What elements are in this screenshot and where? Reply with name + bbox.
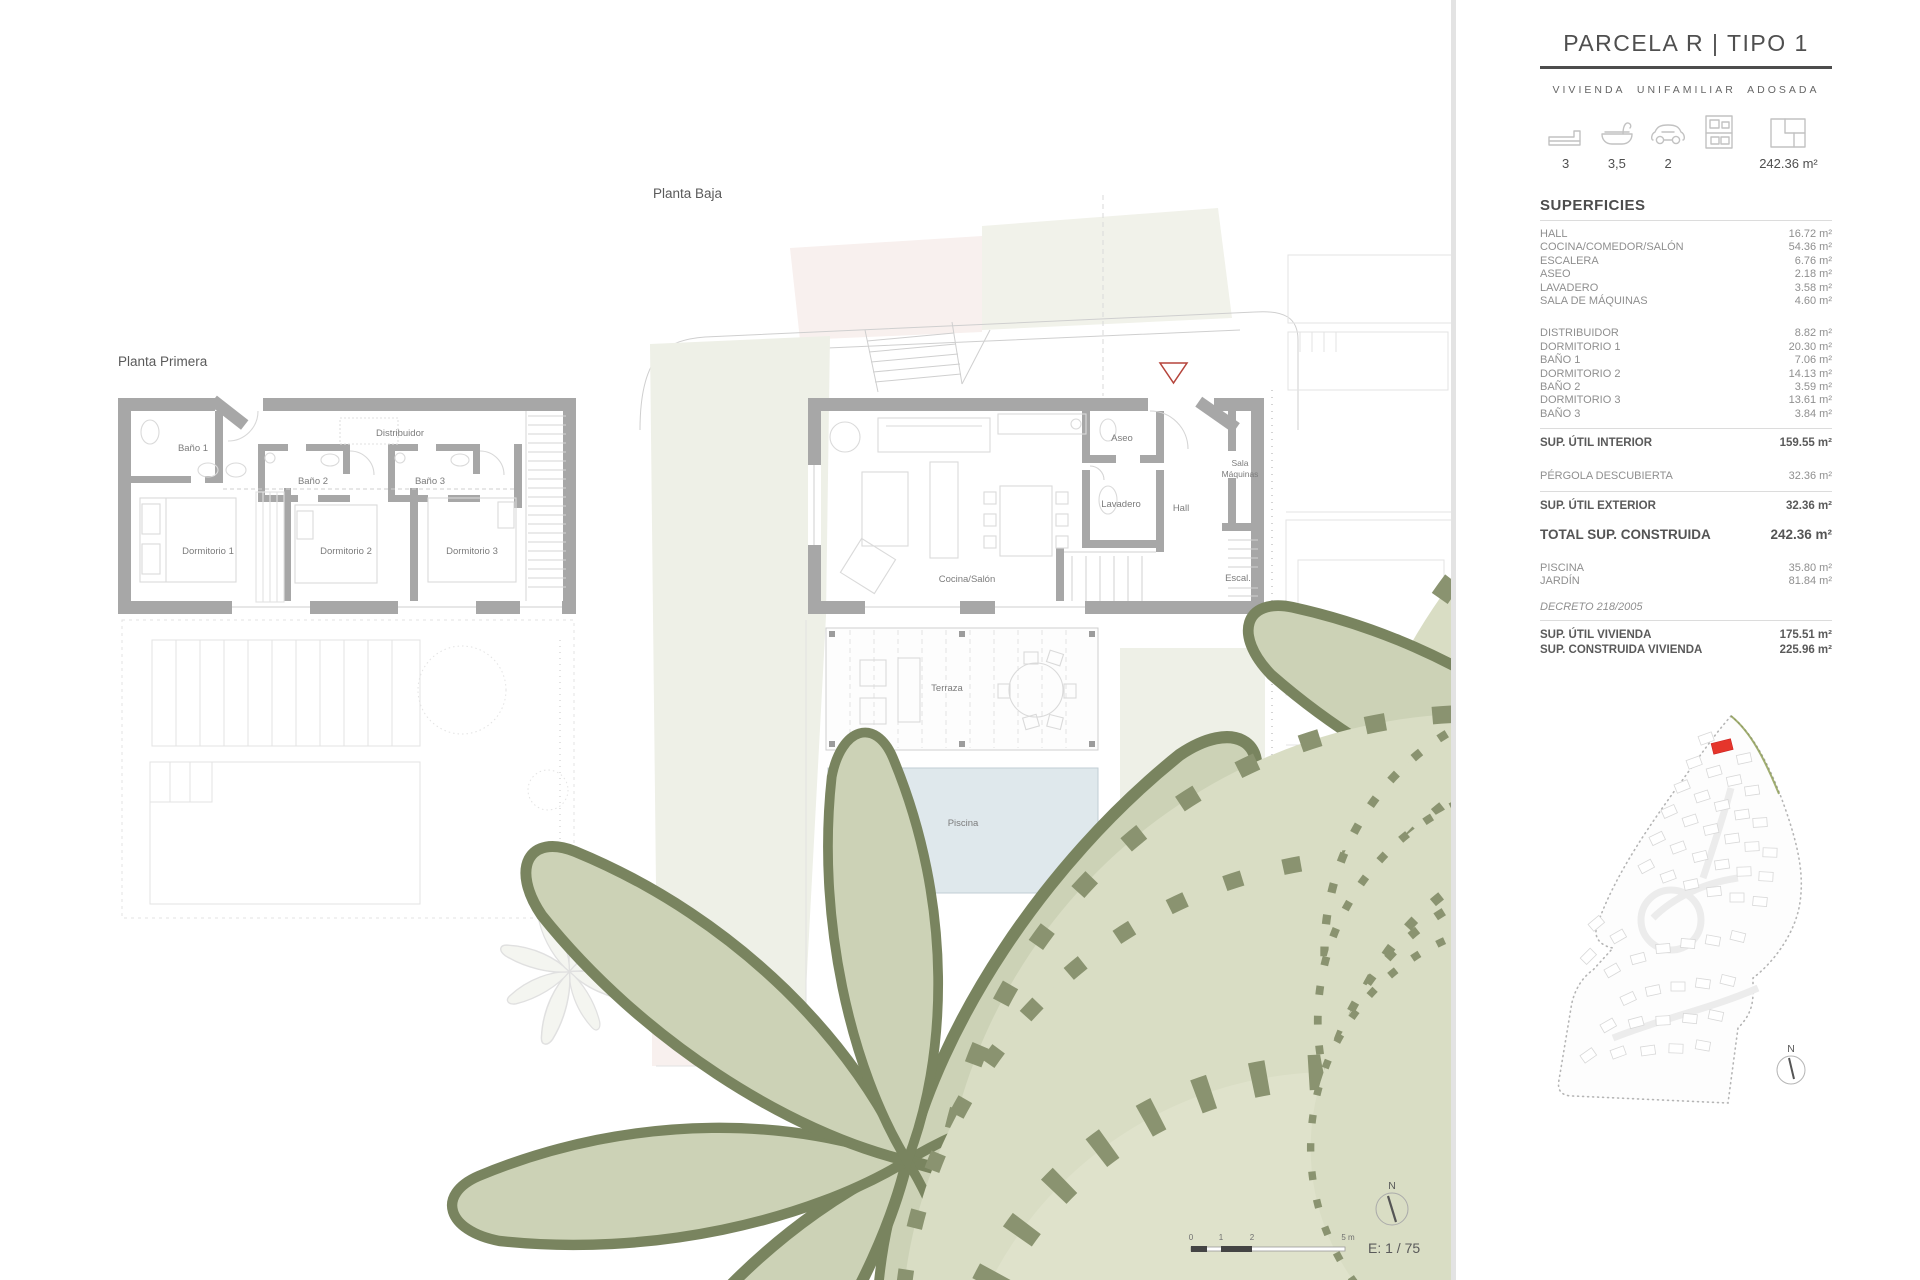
- superficies-exterior-rows: PÉRGOLA DESCUBIERTA 32.36 m²: [1540, 470, 1832, 483]
- floorplan-icon: [1768, 116, 1808, 150]
- row-value: 2.18 m²: [1795, 268, 1832, 281]
- feature-bedrooms: 3: [1540, 118, 1591, 171]
- superficies-row: PISCINA 35.80 m²: [1540, 562, 1832, 575]
- row-value: 16.72 m²: [1789, 228, 1832, 241]
- row-value: 3.84 m²: [1795, 408, 1832, 421]
- car-icon: [1648, 116, 1688, 150]
- decree-note: DECRETO 218/2005: [1540, 601, 1832, 613]
- room-label-bano3: Baño 3: [415, 476, 445, 487]
- scale-tick-5m: 5 m: [1341, 1233, 1355, 1242]
- room-label-sala-maquinas: Sala: [1231, 458, 1248, 468]
- total-constructed-row: TOTAL SUP. CONSTRUIDA 242.36 m²: [1540, 526, 1832, 543]
- row-label: PÉRGOLA DESCUBIERTA: [1540, 470, 1673, 483]
- row-value: 3.58 m²: [1795, 282, 1832, 295]
- map-north-label: N: [1787, 1043, 1795, 1055]
- separator: [1540, 428, 1832, 429]
- decree-rows: SUP. ÚTIL VIVIENDA 175.51 m² SUP. CONSTR…: [1540, 628, 1832, 658]
- site-location-map: N: [1553, 708, 1818, 1113]
- title-rule: [1540, 66, 1832, 69]
- superficies-row: BAÑO 3 3.84 m²: [1540, 408, 1832, 421]
- feature-value: 242.36 m²: [1745, 156, 1832, 171]
- row-label: SUP. ÚTIL EXTERIOR: [1540, 499, 1656, 514]
- row-label: BAÑO 1: [1540, 354, 1580, 367]
- superficies-row: DORMITORIO 3 13.61 m²: [1540, 394, 1832, 407]
- row-label: TOTAL SUP. CONSTRUIDA: [1540, 526, 1711, 543]
- room-label-hall: Hall: [1173, 503, 1189, 514]
- ground-floor-walls: [808, 398, 1264, 614]
- feature-value: 3,5: [1591, 156, 1642, 171]
- superficies-row: BAÑO 2 3.59 m²: [1540, 381, 1832, 394]
- row-label: DISTRIBUIDOR: [1540, 327, 1619, 340]
- bathtub-icon: [1597, 116, 1637, 150]
- superficies-row: PÉRGOLA DESCUBIERTA 32.36 m²: [1540, 470, 1832, 483]
- row-label: SUP. ÚTIL INTERIOR: [1540, 436, 1652, 451]
- row-value: 8.82 m²: [1795, 327, 1832, 340]
- row-label: JARDÍN: [1540, 575, 1580, 588]
- scale-label: E: 1 / 75: [1368, 1240, 1420, 1256]
- room-label-sala-maquinas-2: Máquinas: [1222, 469, 1259, 479]
- row-value: 32.36 m²: [1789, 470, 1832, 483]
- room-label-distribuidor: Distribuidor: [376, 428, 424, 439]
- room-label-cocina-salon: Cocina/Salón: [939, 574, 996, 585]
- feature-row: 3 3,5 2: [1540, 114, 1832, 171]
- scale-tick-0: 0: [1189, 1233, 1194, 1242]
- feature-value: 2: [1642, 156, 1693, 171]
- floorplan-sheet: Planta Primera: [0, 0, 1920, 1280]
- separator: [1540, 620, 1832, 621]
- room-label-bano1: Baño 1: [178, 443, 208, 454]
- superficies-row: LAVADERO 3.58 m²: [1540, 282, 1832, 295]
- first-floor-ghost-garden: [122, 620, 574, 930]
- superficies-outdoor-rows: PISCINA 35.80 m² JARDÍN 81.84 m²: [1540, 562, 1832, 589]
- row-label: LAVADERO: [1540, 282, 1598, 295]
- scale-tick-1: 1: [1219, 1233, 1224, 1242]
- plan-drawing: Planta Primera: [0, 0, 1451, 1280]
- row-label: PISCINA: [1540, 562, 1584, 575]
- superficies-ground-rows: HALL 16.72 m² COCINA/COMEDOR/SALÓN 54.36…: [1540, 228, 1832, 308]
- superficies-row: BAÑO 1 7.06 m²: [1540, 354, 1832, 367]
- row-value: 4.60 m²: [1795, 295, 1832, 308]
- first-floor-furniture: [140, 411, 516, 602]
- superficies-first-rows: DISTRIBUIDOR 8.82 m² DORMITORIO 1 20.30 …: [1540, 327, 1832, 421]
- first-floor-stairs: [526, 411, 566, 601]
- bed-icon: [1547, 118, 1585, 150]
- superficies-row: ASEO 2.18 m²: [1540, 268, 1832, 281]
- north-label: N: [1388, 1180, 1396, 1192]
- row-value: 3.59 m²: [1795, 381, 1832, 394]
- feature-value: 3: [1540, 156, 1591, 171]
- room-label-bano2: Baño 2: [298, 476, 328, 487]
- scale-tick-2: 2: [1250, 1233, 1255, 1242]
- row-value: 81.84 m²: [1789, 575, 1832, 588]
- row-value: 35.80 m²: [1789, 562, 1832, 575]
- room-label-dormitorio2: Dormitorio 2: [320, 546, 372, 557]
- superficies-row: HALL 16.72 m²: [1540, 228, 1832, 241]
- parcel-title: PARCELA R | TIPO 1: [1540, 30, 1832, 57]
- row-value: 225.96 m²: [1780, 643, 1832, 658]
- feature-value: [1694, 156, 1745, 171]
- panel-divider: [1451, 0, 1456, 1280]
- superficies-row: SUP. CONSTRUIDA VIVIENDA 225.96 m²: [1540, 643, 1832, 658]
- superficies-row: SUP. ÚTIL VIVIENDA 175.51 m²: [1540, 628, 1832, 643]
- superficies-row: ESCALERA 6.76 m²: [1540, 255, 1832, 268]
- entrance-marker: [1160, 363, 1187, 383]
- row-label: SALA DE MÁQUINAS: [1540, 295, 1648, 308]
- parcel-subtitle: VIVIENDA UNIFAMILIAR ADOSADA: [1540, 84, 1832, 96]
- row-label: ESCALERA: [1540, 255, 1599, 268]
- row-value: 175.51 m²: [1780, 628, 1832, 643]
- superficies-heading: SUPERFICIES: [1540, 197, 1832, 221]
- feature-parking: 2: [1642, 116, 1693, 171]
- row-value: 6.76 m²: [1795, 255, 1832, 268]
- row-label: DORMITORIO 3: [1540, 394, 1620, 407]
- separator: [1540, 491, 1832, 492]
- room-label-escalera: Escal.: [1225, 573, 1251, 584]
- room-label-dormitorio3: Dormitorio 3: [446, 546, 498, 557]
- first-floor-title: Planta Primera: [118, 354, 208, 369]
- row-label: ASEO: [1540, 268, 1571, 281]
- ground-floor-title: Planta Baja: [653, 186, 723, 201]
- room-label-dormitorio1: Dormitorio 1: [182, 546, 234, 557]
- map-north-compass: N: [1777, 1043, 1805, 1084]
- wardrobe-icon: [1701, 114, 1737, 150]
- superficies-row: DORMITORIO 2 14.13 m²: [1540, 368, 1832, 381]
- row-label: SUP. ÚTIL VIVIENDA: [1540, 628, 1651, 643]
- superficies-row: SALA DE MÁQUINAS 4.60 m²: [1540, 295, 1832, 308]
- room-label-terraza: Terraza: [931, 683, 963, 694]
- room-label-piscina: Piscina: [948, 818, 979, 829]
- superficies-row: DORMITORIO 1 20.30 m²: [1540, 341, 1832, 354]
- sup-util-exterior-row: SUP. ÚTIL EXTERIOR 32.36 m²: [1540, 499, 1832, 514]
- feature-storage: [1694, 114, 1745, 171]
- row-label: DORMITORIO 1: [1540, 341, 1620, 354]
- row-value: 14.13 m²: [1789, 368, 1832, 381]
- superficies-row: COCINA/COMEDOR/SALÓN 54.36 m²: [1540, 241, 1832, 254]
- row-label: HALL: [1540, 228, 1568, 241]
- row-value: 32.36 m²: [1786, 499, 1832, 514]
- row-label: SUP. CONSTRUIDA VIVIENDA: [1540, 643, 1702, 658]
- sup-util-interior-row: SUP. ÚTIL INTERIOR 159.55 m²: [1540, 436, 1832, 451]
- row-value: 13.61 m²: [1789, 394, 1832, 407]
- room-label-lavadero: Lavadero: [1101, 499, 1141, 510]
- row-value: 242.36 m²: [1770, 526, 1832, 543]
- room-label-aseo: Aseo: [1111, 433, 1133, 444]
- feature-bathrooms: 3,5: [1591, 116, 1642, 171]
- row-label: BAÑO 2: [1540, 381, 1580, 394]
- superficies-row: JARDÍN 81.84 m²: [1540, 575, 1832, 588]
- row-label: DORMITORIO 2: [1540, 368, 1620, 381]
- superficies-row: DISTRIBUIDOR 8.82 m²: [1540, 327, 1832, 340]
- row-label: COCINA/COMEDOR/SALÓN: [1540, 241, 1684, 254]
- feature-built-area: 242.36 m²: [1745, 116, 1832, 171]
- row-value: 20.30 m²: [1789, 341, 1832, 354]
- row-label: BAÑO 3: [1540, 408, 1580, 421]
- row-value: 159.55 m²: [1780, 436, 1832, 451]
- row-value: 54.36 m²: [1789, 241, 1832, 254]
- info-sidebar: PARCELA R | TIPO 1 VIVIENDA UNIFAMILIAR …: [1540, 0, 1832, 658]
- row-value: 7.06 m²: [1795, 354, 1832, 367]
